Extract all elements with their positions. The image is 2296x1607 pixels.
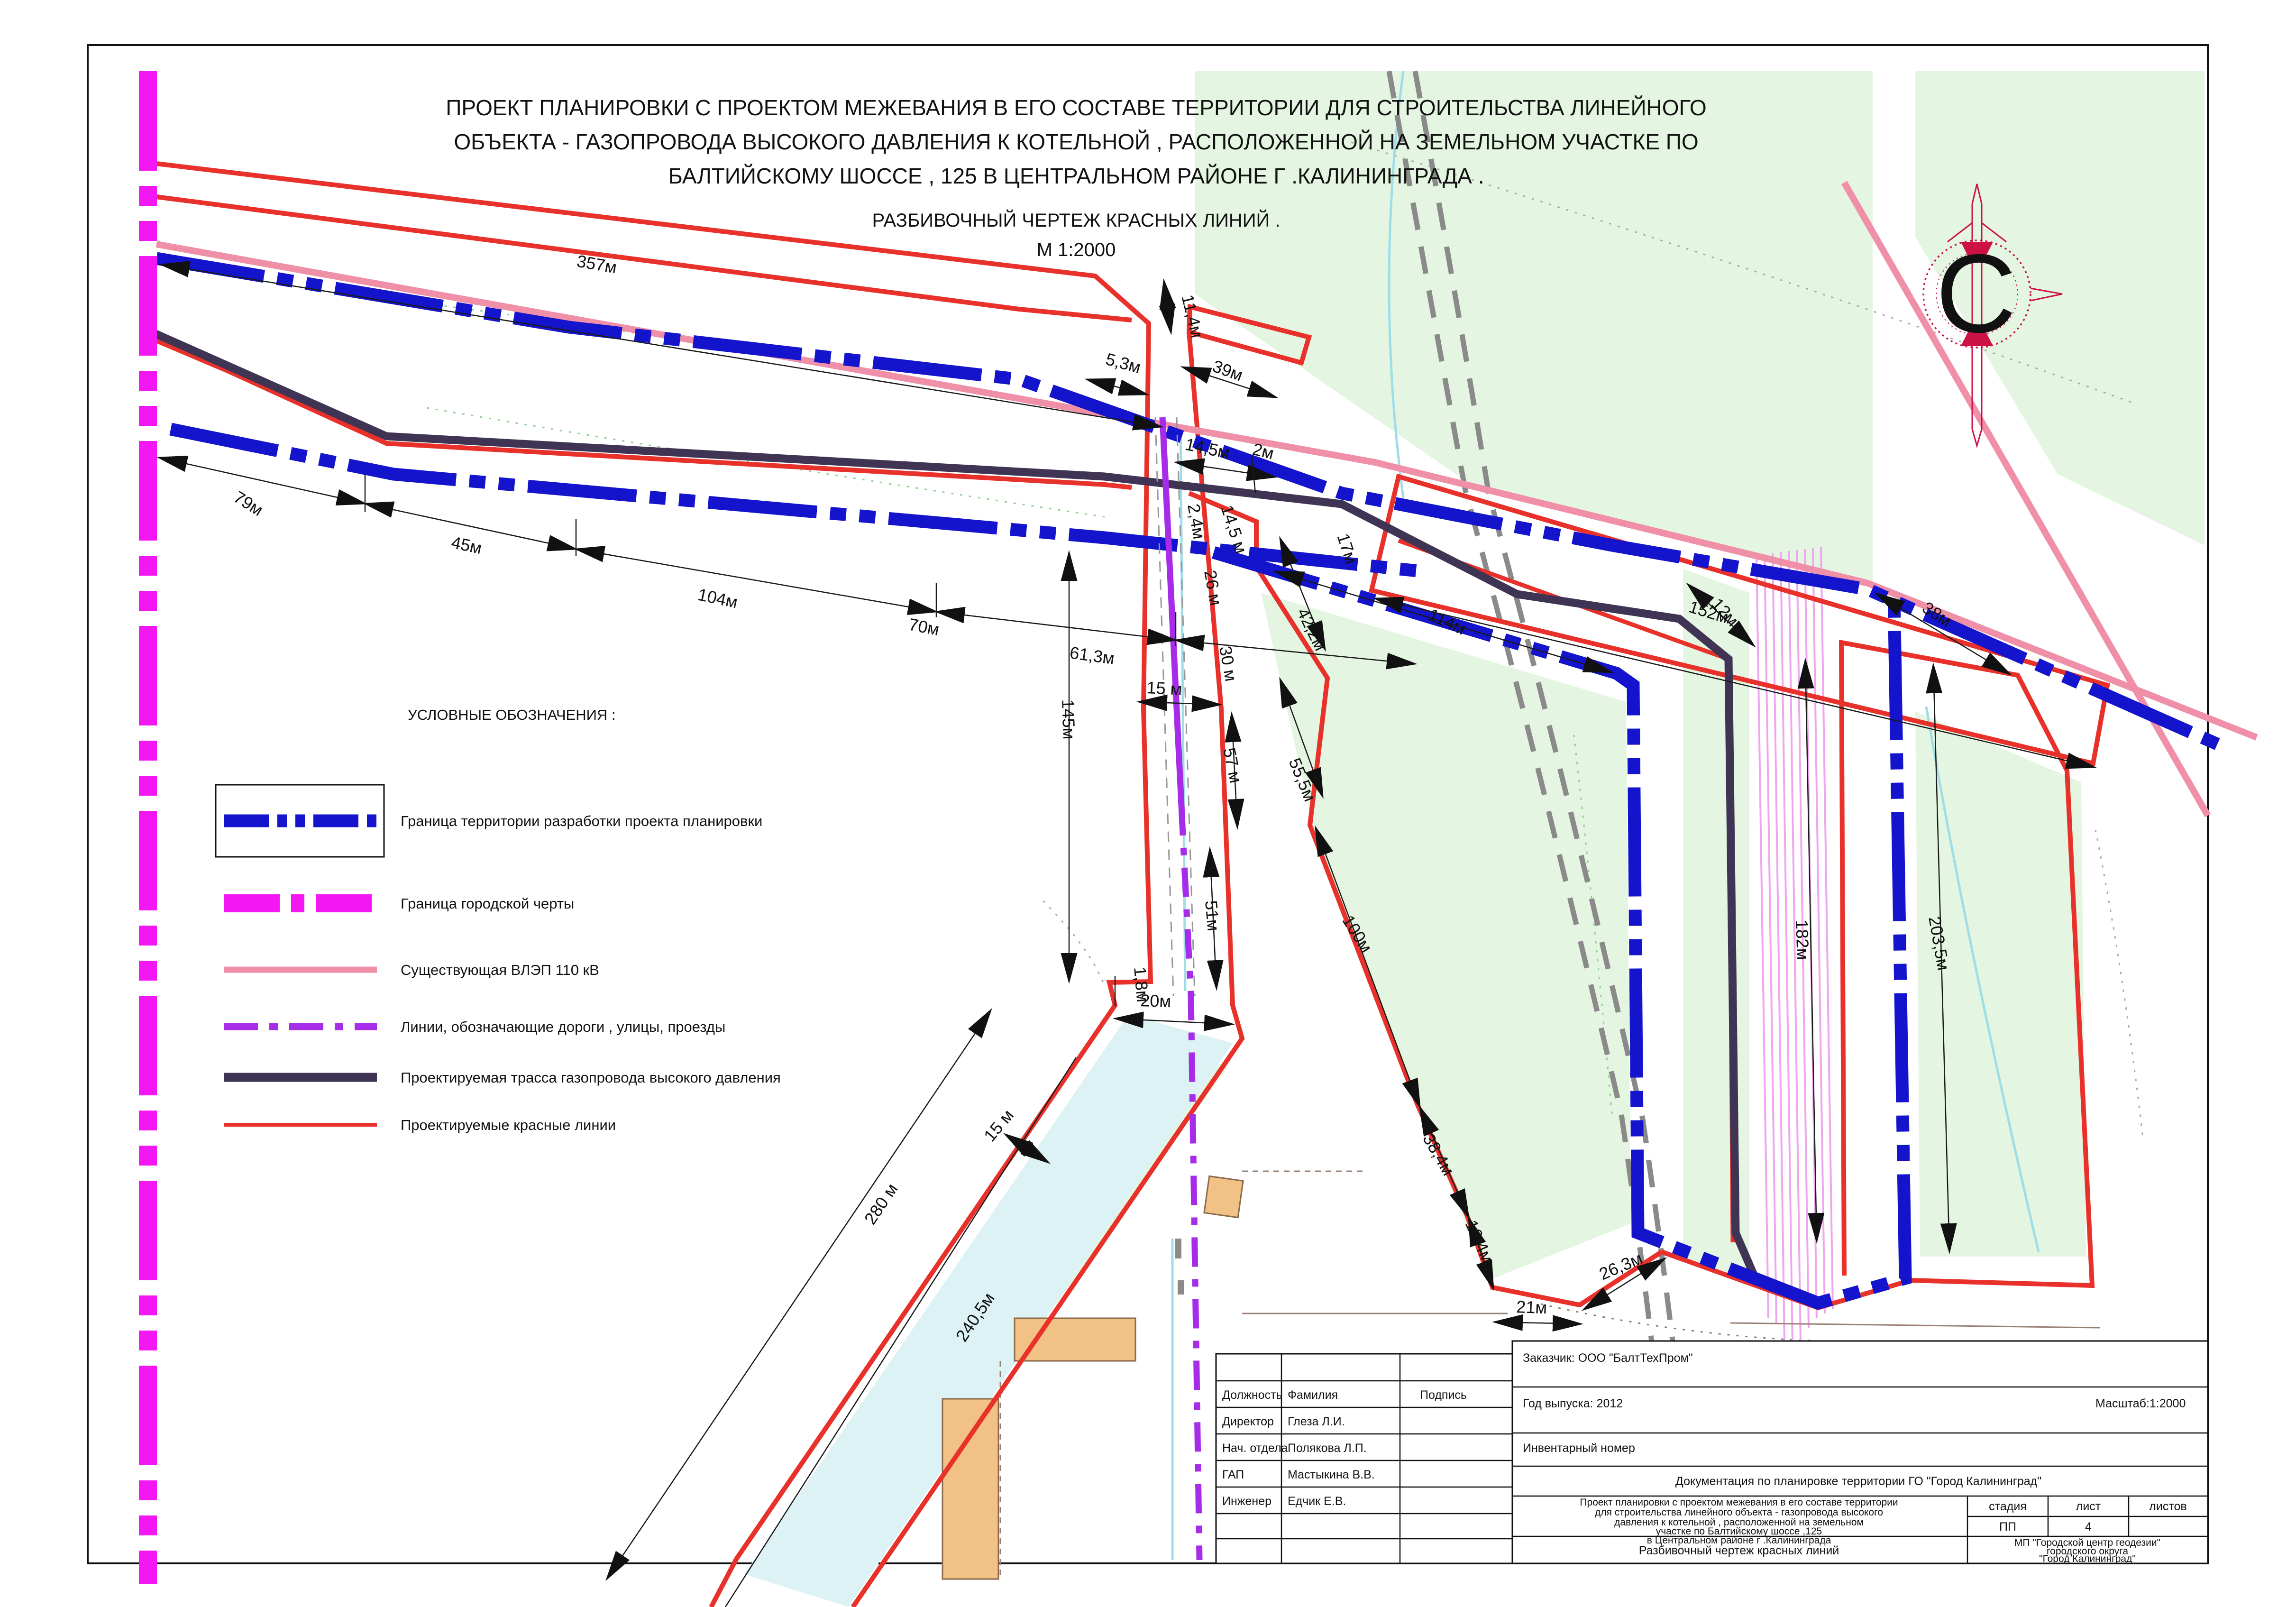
stamp-role-cell: Инженер: [1222, 1495, 1271, 1508]
stamp-org-line: "Город Калининград": [2039, 1553, 2136, 1564]
stamp-name-cell: Глеза Л.И.: [1288, 1415, 1345, 1428]
stamp-role-cell: ГАП: [1222, 1468, 1244, 1481]
drawing-scale: М 1:2000: [1037, 239, 1116, 260]
dim-label: 15 м: [1146, 678, 1183, 699]
stamp-name-cell: Едчик Е.В.: [1288, 1495, 1346, 1508]
stamp-inventory: Инвентарный номер: [1523, 1442, 1635, 1455]
stamp-sheet-header: лист: [2076, 1500, 2101, 1513]
stamp-col-header: Подпись: [1420, 1388, 1467, 1402]
stamp-scale: Масштаб:1:2000: [2095, 1397, 2186, 1410]
dim-label: 182м: [1792, 919, 1813, 960]
title-line-3: БАЛТИЙСКОМУ ШОССЕ , 125 В ЦЕНТРАЛЬНОМ РА…: [668, 164, 1484, 188]
stamp-col-header: Фамилия: [1288, 1388, 1338, 1402]
title-line-2: ОБЪЕКТА - ГАЗОПРОВОДА ВЫСОКОГО ДАВЛЕНИЯ …: [454, 129, 1698, 154]
stamp-project-line: для строительства линейного объекта - га…: [1595, 1507, 1883, 1518]
stamp-drawing-name: Разбивочный чертеж красных линий: [1639, 1544, 1839, 1557]
stamp-doc-title: Документация по планировке территории ГО…: [1675, 1475, 2041, 1488]
stamp-sheet-value: 4: [2085, 1520, 2092, 1534]
stamp: Заказчик: ООО "БалтТехПром" Год выпуска:…: [1216, 1341, 2208, 1564]
stamp-name-cell: Мастыкина В.В.: [1288, 1468, 1375, 1481]
stamp-role-cell: Директор: [1222, 1415, 1274, 1428]
legend-title: УСЛОВНЫЕ ОБОЗНАЧЕНИЯ :: [408, 707, 616, 723]
stamp-project-line: Проект планировки с проектом межевания в…: [1580, 1497, 1898, 1508]
title-line-1: ПРОЕКТ ПЛАНИРОВКИ С ПРОЕКТОМ МЕЖЕВАНИЯ В…: [446, 95, 1706, 120]
stamp-year: Год выпуска: 2012: [1523, 1397, 1623, 1410]
stamp-sheets-header: листов: [2149, 1500, 2186, 1513]
legend-item-label: Граница территории разработки проекта пл…: [401, 813, 762, 829]
stamp-customer: Заказчик: ООО "БалтТехПром": [1523, 1351, 1693, 1365]
legend-item-label: Граница городской черты: [401, 895, 574, 912]
stamp-name-cell: Полякова Л.П.: [1288, 1442, 1367, 1455]
stamp-stage-header: стадия: [1989, 1500, 2027, 1513]
stamp-col-header: Должность: [1222, 1388, 1282, 1402]
legend-item-label: Линии, обозначающие дороги , улицы, прое…: [401, 1019, 725, 1035]
dim-label: 51м: [1201, 900, 1223, 932]
dim-label: 20м: [1140, 991, 1171, 1011]
plan-canvas: 357м 79м 45м 104м 70м 61,3м 11,4м 5,3м 3…: [0, 0, 2296, 1607]
legend-item-label: Проектируемые красные линии: [401, 1117, 616, 1133]
stamp-stage-value: ПП: [1999, 1520, 2016, 1534]
drawing-sheet: 357м 79м 45м 104м 70м 61,3м 11,4м 5,3м 3…: [0, 0, 2296, 1607]
dim-label: 145м: [1058, 699, 1079, 740]
compass-north-letter: С: [1936, 231, 2016, 356]
legend-item-label: Проектируемая трасса газопровода высоког…: [401, 1069, 781, 1086]
stamp-role-cell: Нач. отдела: [1222, 1442, 1288, 1455]
legend-item-label: Существующая ВЛЭП 110 кВ: [401, 962, 599, 978]
drawing-subtitle: РАЗБИВОЧНЫЙ ЧЕРТЕЖ КРАСНЫХ ЛИНИЙ .: [872, 209, 1281, 231]
dim-label: 21м: [1516, 1297, 1547, 1317]
